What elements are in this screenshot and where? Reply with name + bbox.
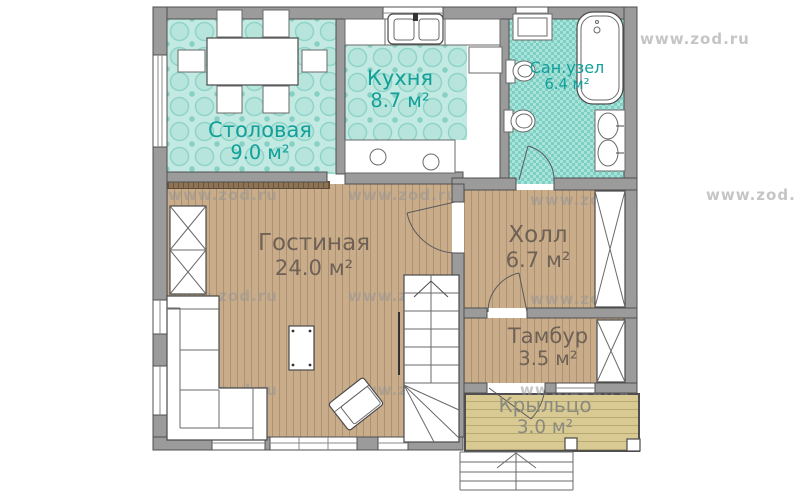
living-floor (167, 184, 452, 437)
watermark: www.zod.ru (348, 287, 458, 305)
steps-direction-arrow-icon (497, 453, 536, 468)
entrance-steps (460, 452, 573, 490)
room-label-dining: Столовая 9.0 м² (208, 118, 312, 164)
floor-plan: www.zod.ru www.zod.ru www.zod.ru www.zod… (0, 0, 795, 496)
bathroom-floor (509, 19, 624, 184)
watermark: www.zod.ru (348, 186, 458, 204)
room-label-porch: Крыльцо 3.0 м² (498, 394, 591, 438)
watermark: www.zod.ru (168, 186, 278, 204)
room-label-kitchen: Кухня 8.7 м² (367, 66, 433, 112)
room-label-hall: Холл 6.7 м² (506, 222, 571, 273)
watermark: www.zod.ru (168, 287, 278, 305)
watermark: www.zod.ru (530, 191, 640, 209)
stove-burner-icon (423, 154, 439, 170)
room-label-bathroom: Сан.узел 6.4 м² (530, 59, 605, 94)
watermark: www.zod.ru (706, 186, 795, 204)
faucet-icon (413, 13, 418, 21)
kitchen-appliance (469, 47, 502, 73)
watermark: www.zod.ru (640, 30, 750, 48)
watermark: www.zod.ru (168, 381, 278, 399)
watermark: www.zod.ru (530, 290, 640, 308)
room-label-living: Гостиная 24.0 м² (258, 230, 370, 281)
kitchen-sink (388, 14, 443, 44)
room-label-tambour: Тамбур 3.5 м² (508, 324, 588, 370)
watermark: www.zod.ru (348, 381, 458, 399)
stove-burner-icon (370, 149, 386, 165)
